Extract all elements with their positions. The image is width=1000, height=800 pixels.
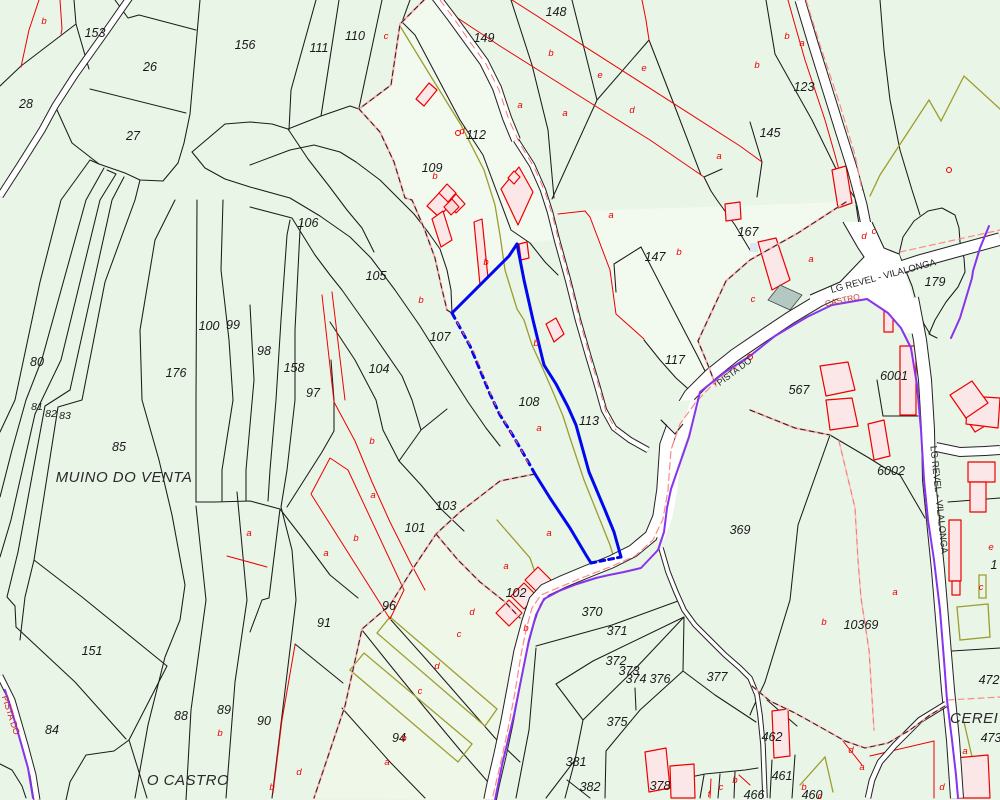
svg-text:b: b <box>676 247 681 258</box>
svg-text:370: 370 <box>582 605 603 619</box>
svg-text:26: 26 <box>142 60 157 74</box>
svg-text:102: 102 <box>506 586 527 600</box>
svg-text:a: a <box>323 548 328 559</box>
svg-text:104: 104 <box>369 362 390 376</box>
svg-text:375: 375 <box>607 715 628 729</box>
svg-text:96: 96 <box>382 599 396 613</box>
svg-text:103: 103 <box>436 499 457 513</box>
svg-text:b: b <box>418 295 423 306</box>
svg-text:c: c <box>457 629 462 640</box>
svg-text:473: 473 <box>981 731 1000 745</box>
svg-text:472: 472 <box>979 673 1000 687</box>
svg-text:567: 567 <box>789 383 811 397</box>
svg-text:a: a <box>962 746 967 757</box>
svg-text:b: b <box>217 728 222 739</box>
svg-text:d: d <box>861 231 867 242</box>
svg-text:10369: 10369 <box>844 618 879 632</box>
svg-text:b: b <box>401 733 406 744</box>
svg-text:CEREI: CEREI <box>950 710 998 727</box>
svg-text:b: b <box>41 16 46 27</box>
svg-text:378: 378 <box>650 779 671 793</box>
svg-text:b: b <box>548 48 553 59</box>
svg-text:a: a <box>808 254 813 265</box>
svg-text:101: 101 <box>405 521 426 535</box>
svg-text:b: b <box>732 775 737 786</box>
svg-text:e: e <box>988 542 993 553</box>
svg-text:167: 167 <box>738 225 760 239</box>
svg-text:28: 28 <box>18 97 33 111</box>
svg-text:d: d <box>939 782 945 793</box>
svg-text:d: d <box>469 607 475 618</box>
svg-text:c: c <box>418 686 423 697</box>
svg-text:O CASTRO: O CASTRO <box>147 772 229 789</box>
svg-text:112: 112 <box>466 128 486 142</box>
svg-text:80: 80 <box>30 355 44 369</box>
svg-text:158: 158 <box>284 361 305 375</box>
svg-text:6002: 6002 <box>877 464 905 478</box>
svg-text:98: 98 <box>257 344 271 358</box>
svg-text:117: 117 <box>665 353 686 367</box>
svg-text:151: 151 <box>82 644 103 658</box>
svg-text:d: d <box>629 105 635 116</box>
svg-text:156: 156 <box>235 38 256 52</box>
svg-text:113: 113 <box>579 414 599 428</box>
svg-text:c: c <box>979 582 984 593</box>
svg-text:d: d <box>848 745 854 756</box>
svg-text:100: 100 <box>199 319 220 333</box>
svg-text:b: b <box>754 60 759 71</box>
svg-text:179: 179 <box>925 275 946 289</box>
svg-text:147: 147 <box>645 250 667 264</box>
svg-text:88: 88 <box>174 709 188 723</box>
svg-text:c: c <box>872 226 877 237</box>
svg-text:97: 97 <box>306 386 321 400</box>
svg-text:c: c <box>751 294 756 305</box>
svg-text:a: a <box>546 528 551 539</box>
svg-text:b: b <box>269 782 274 793</box>
svg-text:a: a <box>517 100 522 111</box>
svg-text:b: b <box>523 623 528 634</box>
svg-text:123: 123 <box>794 80 815 94</box>
svg-text:27: 27 <box>125 129 141 143</box>
svg-text:a: a <box>859 762 864 773</box>
svg-text:d: d <box>459 126 465 137</box>
svg-text:149: 149 <box>474 31 495 45</box>
svg-text:a: a <box>370 490 375 501</box>
svg-text:a: a <box>246 528 251 539</box>
svg-text:108: 108 <box>519 395 540 409</box>
svg-text:c: c <box>719 782 724 793</box>
svg-text:a: a <box>608 210 613 221</box>
svg-text:a: a <box>716 151 721 162</box>
svg-text:82: 82 <box>45 408 57 420</box>
svg-text:b: b <box>353 533 358 544</box>
svg-text:d: d <box>434 661 440 672</box>
svg-text:105: 105 <box>366 269 387 283</box>
svg-text:MUINO DO VENTA: MUINO DO VENTA <box>56 469 193 486</box>
svg-text:90: 90 <box>257 714 271 728</box>
svg-text:91: 91 <box>317 616 331 630</box>
svg-text:e: e <box>641 63 646 74</box>
svg-text:84: 84 <box>45 723 59 737</box>
svg-text:176: 176 <box>166 366 187 380</box>
svg-text:107: 107 <box>430 330 452 344</box>
svg-text:b: b <box>483 257 488 268</box>
svg-text:a: a <box>799 38 804 49</box>
svg-text:a: a <box>503 561 508 572</box>
svg-text:106: 106 <box>298 216 319 230</box>
svg-text:110: 110 <box>345 29 365 43</box>
svg-text:c: c <box>818 791 823 800</box>
svg-text:382: 382 <box>580 780 601 794</box>
svg-text:a: a <box>536 423 541 434</box>
svg-text:376: 376 <box>650 672 671 686</box>
svg-text:381: 381 <box>566 755 587 769</box>
svg-text:153: 153 <box>85 26 106 40</box>
svg-text:a: a <box>384 757 389 768</box>
svg-text:a: a <box>562 108 567 119</box>
svg-text:b: b <box>432 171 437 182</box>
svg-text:e: e <box>597 70 602 81</box>
svg-text:b: b <box>533 338 538 349</box>
svg-text:b: b <box>784 31 789 42</box>
svg-text:b: b <box>801 782 806 793</box>
svg-text:a: a <box>892 587 897 598</box>
svg-text:374: 374 <box>626 672 647 686</box>
svg-text:461: 461 <box>772 769 793 783</box>
svg-text:462: 462 <box>762 730 783 744</box>
svg-text:371: 371 <box>607 624 628 638</box>
svg-text:99: 99 <box>226 318 240 332</box>
svg-text:6001: 6001 <box>880 369 908 383</box>
svg-text:466: 466 <box>744 788 765 800</box>
svg-text:145: 145 <box>760 126 781 140</box>
svg-text:81: 81 <box>31 401 43 413</box>
svg-text:369: 369 <box>730 523 751 537</box>
svg-text:148: 148 <box>546 5 567 19</box>
svg-text:d: d <box>296 767 302 778</box>
svg-text:b: b <box>821 617 826 628</box>
svg-text:c: c <box>384 31 389 42</box>
svg-text:b: b <box>369 436 374 447</box>
svg-text:85: 85 <box>112 440 126 454</box>
svg-text:83: 83 <box>59 410 71 422</box>
svg-text:89: 89 <box>217 703 231 717</box>
svg-text:377: 377 <box>707 670 729 684</box>
svg-text:1: 1 <box>991 558 998 572</box>
svg-text:111: 111 <box>309 41 328 55</box>
